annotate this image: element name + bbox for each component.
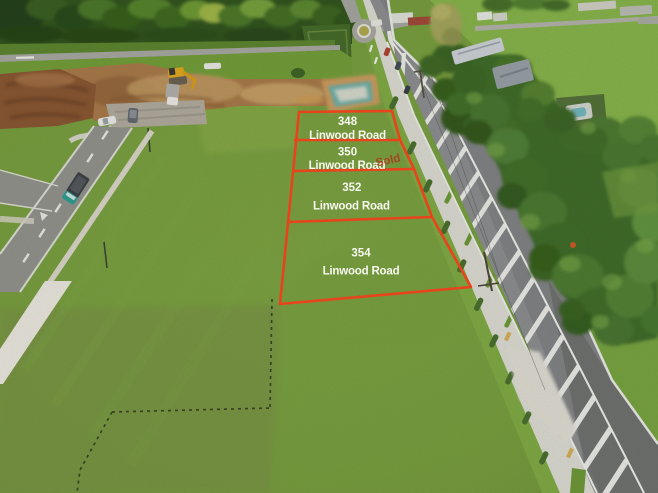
svg-text:350: 350 — [338, 147, 357, 159]
svg-text:Linwood Road: Linwood Road — [323, 266, 400, 278]
svg-text:Linwood Road: Linwood Road — [309, 130, 386, 142]
svg-text:Linwood Road: Linwood Road — [309, 160, 386, 172]
svg-text:Linwood Road: Linwood Road — [313, 201, 390, 213]
svg-text:354: 354 — [351, 248, 371, 260]
svg-text:352: 352 — [342, 182, 361, 194]
svg-text:348: 348 — [338, 116, 358, 128]
